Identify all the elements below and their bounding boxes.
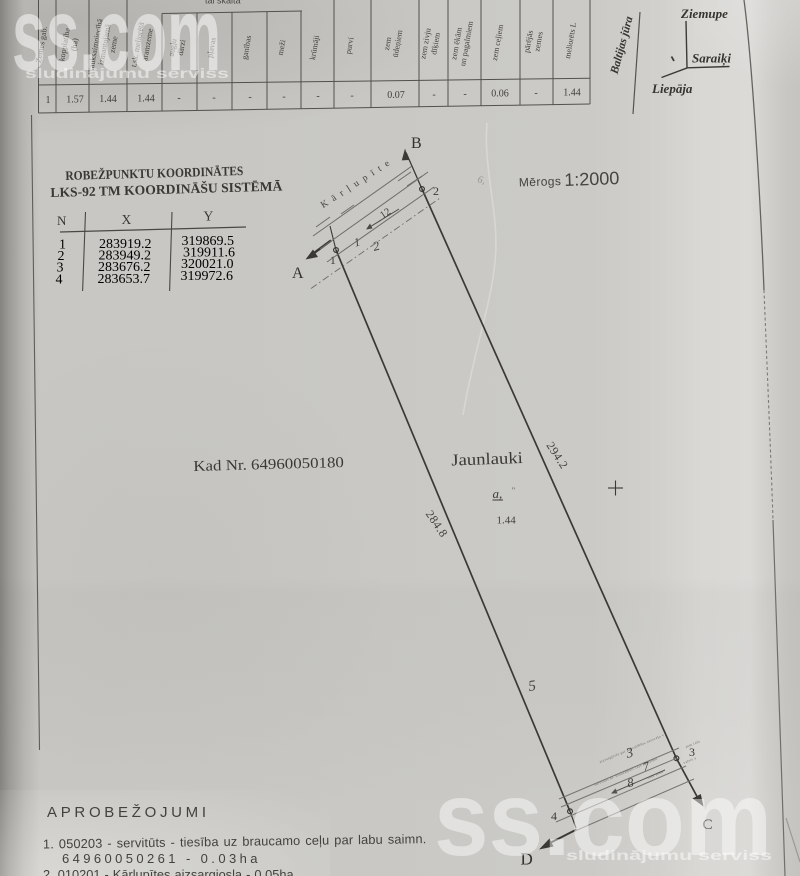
svg-text:purvi: purvi (344, 36, 356, 55)
svg-text:zem ceļiem: zem ceļiem (490, 23, 506, 62)
svg-text:'': '' (512, 486, 515, 495)
svg-text:12: 12 (378, 206, 393, 221)
svg-text:Baltijas jūra: Baltijas jūra (608, 15, 635, 76)
svg-text:1.44: 1.44 (137, 94, 155, 105)
svg-text:X: X (122, 212, 132, 227)
svg-text:ūdeņiem: ūdeņiem (391, 28, 406, 58)
svg-text:-: - (316, 91, 319, 102)
svg-text:-: - (212, 93, 215, 104)
svg-text:2: 2 (433, 184, 439, 198)
svg-text:1.44: 1.44 (99, 94, 117, 105)
svg-text:Y: Y (204, 209, 214, 224)
svg-text:-: - (282, 92, 285, 103)
svg-text:sludinājumu serviss: sludinājumu serviss (566, 848, 772, 863)
svg-text:B: B (411, 135, 422, 152)
svg-text:meliorēts L: meliorēts L (563, 22, 578, 60)
svg-text:1:2000: 1:2000 (564, 168, 620, 190)
svg-text:N: N (57, 213, 67, 228)
svg-text:Saraiķi: Saraiķi (692, 51, 731, 67)
svg-text:-: - (463, 89, 466, 100)
svg-text:a,: a, (493, 486, 503, 501)
svg-text:A: A (292, 265, 304, 282)
svg-text:-: - (534, 88, 537, 99)
svg-text:Jaunlauki: Jaunlauki (451, 448, 524, 469)
svg-text:APROBEŽOJUMI: APROBEŽOJUMI (47, 804, 210, 821)
svg-text:1: 1 (46, 95, 51, 106)
svg-text:1.44: 1.44 (563, 88, 581, 99)
svg-text:meži: meži (276, 38, 288, 56)
svg-text:1.44: 1.44 (497, 515, 517, 527)
svg-text:1. 050203 - servitūts - tiesīb: 1. 050203 - servitūts - tiesība uz brauc… (43, 831, 427, 851)
svg-text:2. 010201 - Kārļupītes aizsarg: 2. 010201 - Kārļupītes aizsargjosla - 0.… (43, 867, 294, 876)
svg-text:Mērogs: Mērogs (519, 174, 562, 189)
svg-text:-: - (177, 93, 180, 104)
svg-text:294.2: 294.2 (543, 439, 571, 471)
svg-text:64960050261 - 0.03ha: 64960050261 - 0.03ha (62, 851, 261, 866)
svg-text:1.57: 1.57 (66, 95, 84, 106)
svg-text:sludinājumu serviss: sludinājumu serviss (25, 66, 229, 81)
svg-text:krūmāji: krūmāji (308, 34, 321, 61)
svg-text:1: 1 (352, 235, 361, 250)
svg-text:Kad Nr. 64960050180: Kad Nr. 64960050180 (193, 455, 344, 475)
svg-text:0.06: 0.06 (491, 89, 509, 100)
svg-text:-: - (432, 90, 435, 101)
svg-text:6,: 6, (476, 174, 486, 187)
svg-text:Ziemupe: Ziemupe (680, 6, 728, 21)
svg-text:-: - (248, 92, 251, 103)
svg-text:-: - (350, 91, 353, 102)
svg-text:4: 4 (56, 273, 63, 288)
svg-text:0.07: 0.07 (387, 90, 405, 101)
svg-text:ganības: ganības (240, 35, 253, 61)
svg-text:284.8: 284.8 (423, 508, 451, 540)
svg-text:5: 5 (527, 678, 537, 695)
svg-text:283653.7: 283653.7 (98, 272, 151, 287)
svg-text:319972.6: 319972.6 (181, 269, 234, 284)
svg-text:Liepāja: Liepāja (651, 81, 693, 96)
svg-text:2: 2 (371, 238, 382, 254)
